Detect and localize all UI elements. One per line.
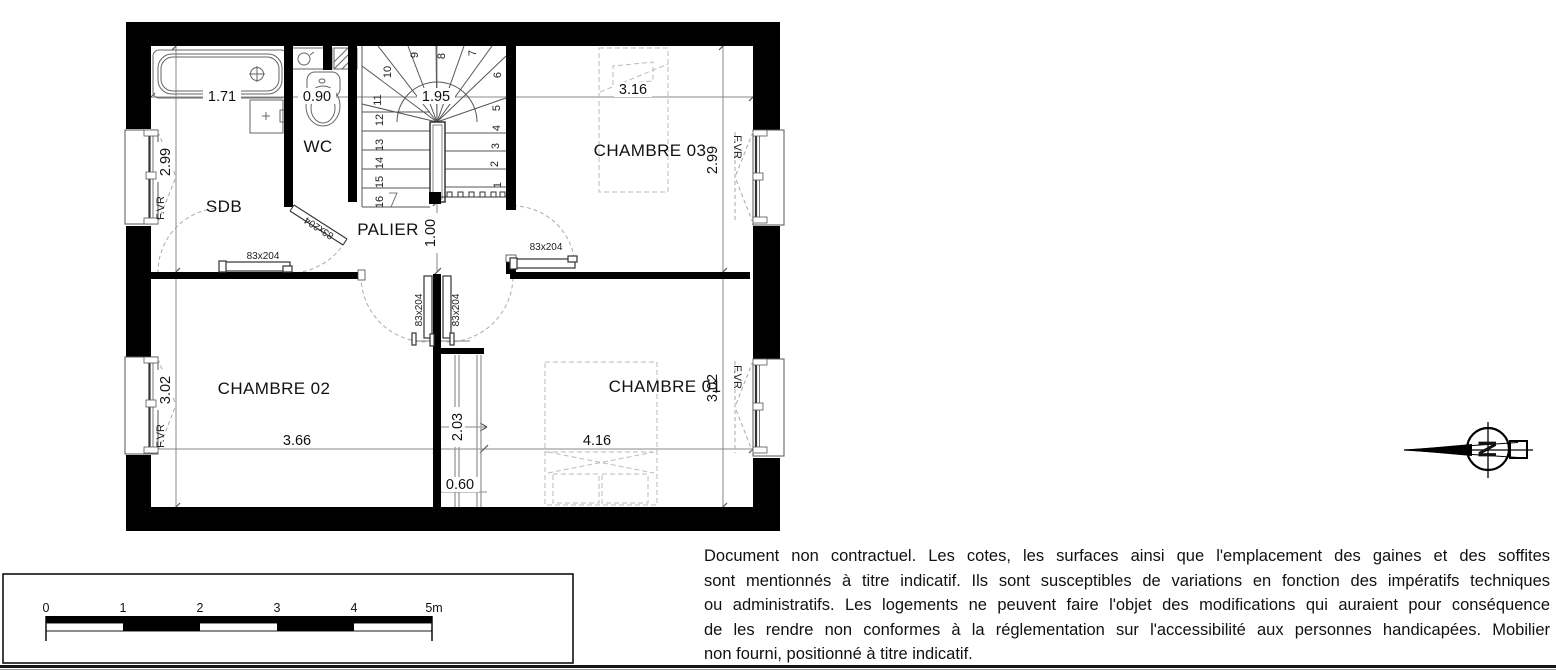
svg-text:1.71: 1.71 — [208, 89, 236, 105]
svg-text:9: 9 — [409, 52, 421, 58]
disclaimer-line: Document non contractuel. Les cotes, les… — [704, 544, 1550, 569]
disclaimer-line: sont mentionnés à titre indicatif. Ils s… — [704, 569, 1550, 594]
svg-text:0.90: 0.90 — [303, 89, 331, 105]
scale-bar: 0 1 2 3 4 5m — [3, 574, 573, 663]
svg-text:83x204: 83x204 — [451, 293, 462, 326]
svg-text:14: 14 — [374, 157, 386, 169]
svg-text:2.99: 2.99 — [705, 146, 721, 174]
disclaimer-line: non fourni, positionné à titre indicatif… — [704, 642, 1550, 667]
north-arrow-icon — [1404, 444, 1472, 456]
svg-text:1.95: 1.95 — [422, 89, 450, 105]
svg-text:1.00: 1.00 — [423, 219, 439, 247]
svg-text:F.VR: F.VR — [155, 424, 167, 448]
svg-text:F.VR: F.VR — [155, 196, 167, 220]
bottom-divider-shadow — [0, 669, 1556, 670]
room-label-wc: WC — [303, 137, 332, 156]
svg-text:8: 8 — [436, 53, 448, 59]
svg-text:0: 0 — [43, 601, 50, 615]
svg-text:11: 11 — [372, 94, 384, 105]
svg-text:83x204: 83x204 — [530, 242, 563, 253]
svg-text:4: 4 — [351, 601, 358, 615]
svg-text:13: 13 — [374, 139, 386, 151]
svg-text:1: 1 — [120, 601, 127, 615]
staircase: 1 2 3 4 5 6 7 8 9 10 11 12 13 14 15 16 — [362, 46, 506, 208]
north-label: N — [1474, 440, 1502, 458]
door-chambre-02 — [219, 261, 292, 272]
svg-text:15: 15 — [374, 176, 386, 188]
svg-text:3.66: 3.66 — [283, 433, 311, 449]
room-label-sdb: SDB — [206, 197, 242, 216]
svg-text:10: 10 — [382, 66, 394, 78]
svg-text:2.03: 2.03 — [450, 413, 466, 441]
svg-text:2.99: 2.99 — [158, 148, 174, 176]
room-label-ch02: CHAMBRE 02 — [218, 379, 331, 398]
svg-text:2: 2 — [197, 601, 204, 615]
bed-chambre-03 — [599, 48, 668, 192]
svg-text:12: 12 — [374, 114, 386, 126]
vanity — [250, 100, 285, 133]
svg-text:4.16: 4.16 — [583, 433, 611, 449]
svg-text:F.VR: F.VR — [731, 365, 743, 389]
svg-text:83x204: 83x204 — [414, 293, 425, 326]
room-label-ch03: CHAMBRE 03 — [594, 141, 707, 160]
north-compass: N — [1404, 422, 1533, 478]
svg-text:4: 4 — [491, 125, 503, 131]
room-label-palier: PALIER — [357, 220, 419, 239]
svg-text:5: 5 — [491, 105, 503, 111]
svg-text:6: 6 — [492, 72, 504, 78]
svg-text:16: 16 — [374, 196, 386, 208]
svg-text:7: 7 — [467, 50, 479, 56]
disclaimer-line: de les rendre non conformes à la régleme… — [704, 618, 1550, 643]
svg-text:3.02: 3.02 — [158, 376, 174, 404]
svg-text:3: 3 — [274, 601, 281, 615]
disclaimer-line: ou administratifs. Les logements ne peuv… — [704, 593, 1550, 618]
disclaimer-text: Document non contractuel. Les cotes, les… — [704, 544, 1550, 667]
svg-text:5m: 5m — [425, 601, 442, 615]
bottom-divider — [0, 665, 1556, 668]
svg-text:83x204: 83x204 — [247, 251, 280, 262]
svg-text:0.60: 0.60 — [446, 477, 474, 493]
floor-plan-page: 1 2 3 4 5 6 7 8 9 10 11 12 13 14 15 16 — [0, 0, 1556, 671]
svg-text:83x204: 83x204 — [302, 214, 336, 241]
door-chambre-01 — [510, 256, 577, 269]
svg-text:3: 3 — [490, 143, 502, 149]
svg-text:2: 2 — [489, 161, 501, 167]
svg-text:3.16: 3.16 — [619, 82, 647, 98]
svg-text:1: 1 — [492, 182, 504, 188]
svg-text:F.VR: F.VR — [731, 135, 743, 159]
room-label-ch01: CHAMBRE 01 — [609, 377, 722, 396]
